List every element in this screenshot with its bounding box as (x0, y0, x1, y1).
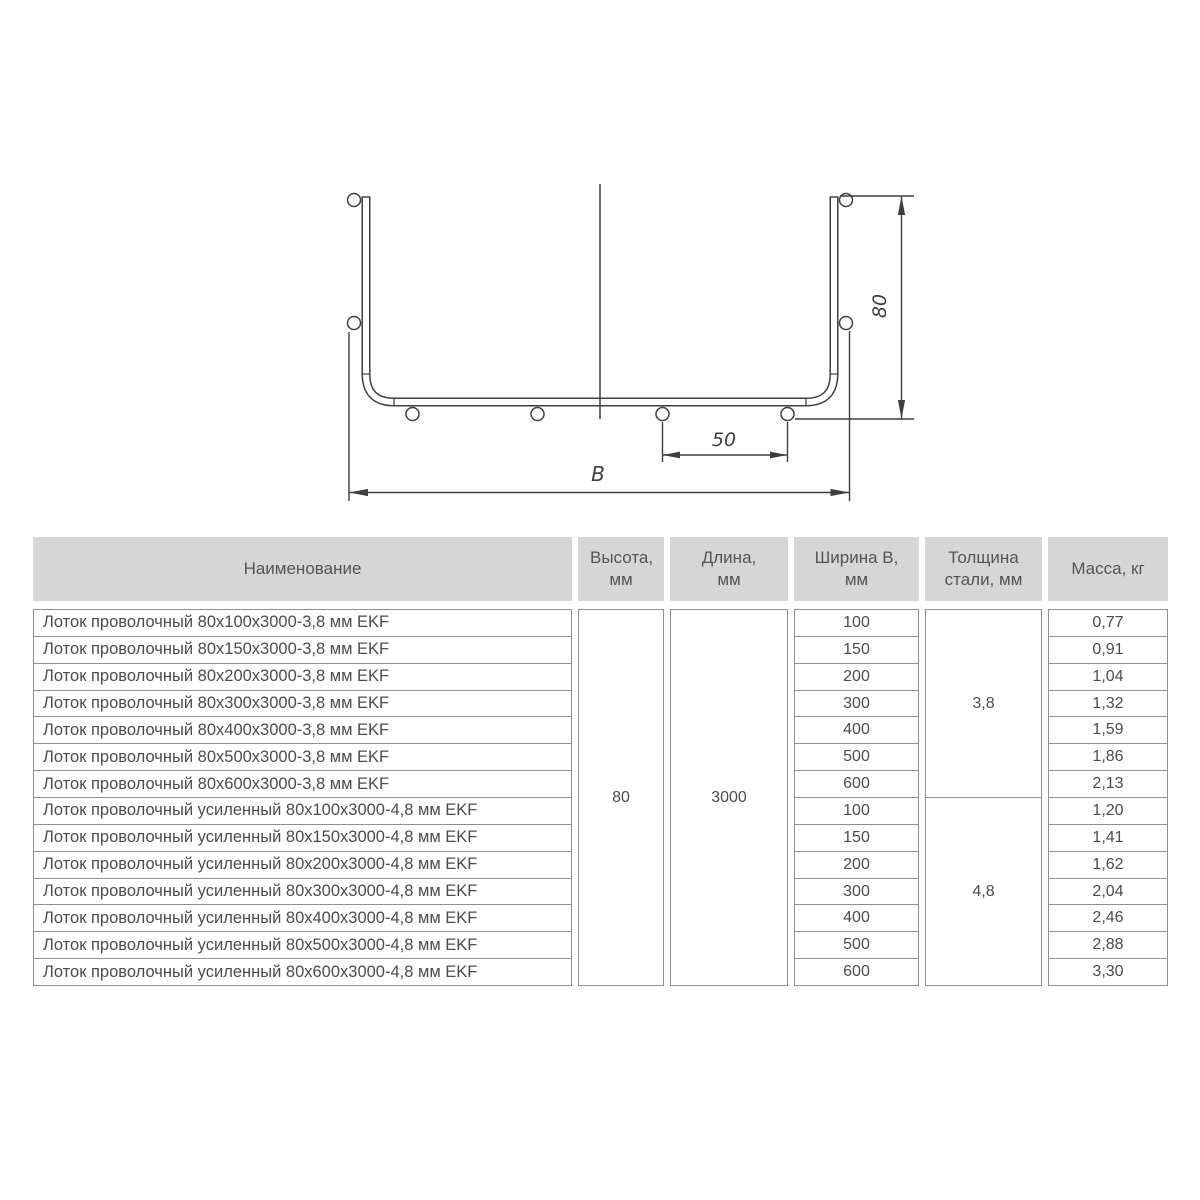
product-name-cell: Лоток проволочный усиленный 80х200х3000-… (34, 851, 571, 878)
header-length: Длина, мм (670, 537, 788, 601)
width-cell: 100 (795, 797, 918, 824)
mass-cell: 1,59 (1049, 716, 1167, 743)
header-mass: Масса, кг (1048, 537, 1168, 601)
column-mass: 0,77 0,91 1,04 1,32 1,59 1,86 2,13 1,20 … (1048, 609, 1168, 986)
dim-50-arrow-right (770, 452, 788, 459)
header-width: Ширина В, мм (794, 537, 919, 601)
wire-end-circle-left-mid (348, 317, 361, 330)
width-cell: 200 (795, 663, 918, 690)
wire-tray-cross-section-drawing: 80 50 B (0, 0, 1200, 537)
dim-B-arrow-left (349, 489, 368, 496)
width-cell: 100 (795, 610, 918, 636)
mass-cell: 1,20 (1049, 797, 1167, 824)
header-thickness-label: Толщина стали, мм (939, 547, 1029, 591)
mass-cell: 0,77 (1049, 610, 1167, 636)
dim-50-arrow-left (663, 452, 681, 459)
column-length: 3000 (670, 609, 788, 986)
width-cell: 400 (795, 904, 918, 931)
header-thickness: Толщина стали, мм (925, 537, 1042, 601)
width-cell: 150 (795, 824, 918, 851)
header-name-label: Наименование (244, 558, 362, 580)
header-name: Наименование (33, 537, 572, 601)
product-name-cell: Лоток проволочный 80х600х3000-3,8 мм EKF (34, 770, 571, 797)
width-cell: 500 (795, 931, 918, 958)
dim-80-arrow-down (898, 400, 905, 419)
table-header-row: Наименование Высота, мм Длина, мм Ширина… (33, 537, 1167, 601)
wire-end-circle-bottom-4 (781, 408, 794, 421)
spec-table: Наименование Высота, мм Длина, мм Ширина… (33, 537, 1167, 986)
column-product-names: Лоток проволочный 80х100х3000-3,8 мм EKF… (33, 609, 572, 986)
column-thickness: 3,8 4,8 (925, 609, 1042, 986)
product-name-cell: Лоток проволочный усиленный 80х500х3000-… (34, 931, 571, 958)
thickness-merged-cell-48: 4,8 (926, 797, 1041, 985)
product-name-cell: Лоток проволочный усиленный 80х600х3000-… (34, 958, 571, 985)
mass-cell: 1,32 (1049, 690, 1167, 717)
dim-80-arrow-up (898, 196, 905, 215)
width-cell: 300 (795, 690, 918, 717)
width-cell: 500 (795, 743, 918, 770)
header-width-label: Ширина В, мм (812, 547, 902, 591)
dim-label-spacing-50: 50 (712, 429, 736, 451)
product-name-cell: Лоток проволочный 80х200х3000-3,8 мм EKF (34, 663, 571, 690)
width-cell: 400 (795, 716, 918, 743)
dim-label-height-80: 80 (869, 294, 891, 318)
mass-cell: 2,13 (1049, 770, 1167, 797)
product-name-cell: Лоток проволочный 80х500х3000-3,8 мм EKF (34, 743, 571, 770)
width-cell: 200 (795, 851, 918, 878)
column-height: 80 (578, 609, 664, 986)
width-cell: 600 (795, 770, 918, 797)
wire-end-circle-right-mid (840, 317, 853, 330)
wire-end-circle-bottom-2 (531, 408, 544, 421)
height-merged-cell: 80 (579, 610, 663, 985)
dim-label-width-B: B (591, 462, 605, 486)
mass-cell: 3,30 (1049, 958, 1167, 985)
product-name-cell: Лоток проволочный 80х100х3000-3,8 мм EKF (34, 610, 571, 636)
wire-end-circle-left-top (348, 194, 361, 207)
mass-cell: 2,88 (1049, 931, 1167, 958)
thickness-merged-cell-38: 3,8 (926, 610, 1041, 797)
mass-cell: 2,46 (1049, 904, 1167, 931)
length-merged-cell: 3000 (671, 610, 787, 985)
product-name-cell: Лоток проволочный усиленный 80х150х3000-… (34, 824, 571, 851)
table-body: Лоток проволочный 80х100х3000-3,8 мм EKF… (33, 609, 1167, 986)
product-name-cell: Лоток проволочный усиленный 80х400х3000-… (34, 904, 571, 931)
width-cell: 300 (795, 878, 918, 905)
header-length-label: Длина, мм (700, 547, 758, 591)
header-height: Высота, мм (578, 537, 664, 601)
wire-end-circle-bottom-1 (406, 408, 419, 421)
product-name-cell: Лоток проволочный 80х300х3000-3,8 мм EKF (34, 690, 571, 717)
mass-cell: 1,86 (1049, 743, 1167, 770)
dim-B-arrow-right (831, 489, 850, 496)
product-name-cell: Лоток проволочный усиленный 80х300х3000-… (34, 878, 571, 905)
mass-cell: 1,62 (1049, 851, 1167, 878)
column-width: 100 150 200 300 400 500 600 100 150 200 … (794, 609, 919, 986)
width-cell: 600 (795, 958, 918, 985)
product-name-cell: Лоток проволочный 80х400х3000-3,8 мм EKF (34, 716, 571, 743)
width-cell: 150 (795, 636, 918, 663)
wire-end-circle-bottom-3 (656, 408, 669, 421)
mass-cell: 1,41 (1049, 824, 1167, 851)
mass-cell: 1,04 (1049, 663, 1167, 690)
mass-cell: 0,91 (1049, 636, 1167, 663)
mass-cell: 2,04 (1049, 878, 1167, 905)
header-mass-label: Масса, кг (1071, 558, 1144, 580)
page: 80 50 B Наименование Высота, мм Длина, м… (0, 0, 1200, 1200)
header-height-label: Высота, мм (590, 547, 652, 591)
product-name-cell: Лоток проволочный 80х150х3000-3,8 мм EKF (34, 636, 571, 663)
product-name-cell: Лоток проволочный усиленный 80х100х3000-… (34, 797, 571, 824)
